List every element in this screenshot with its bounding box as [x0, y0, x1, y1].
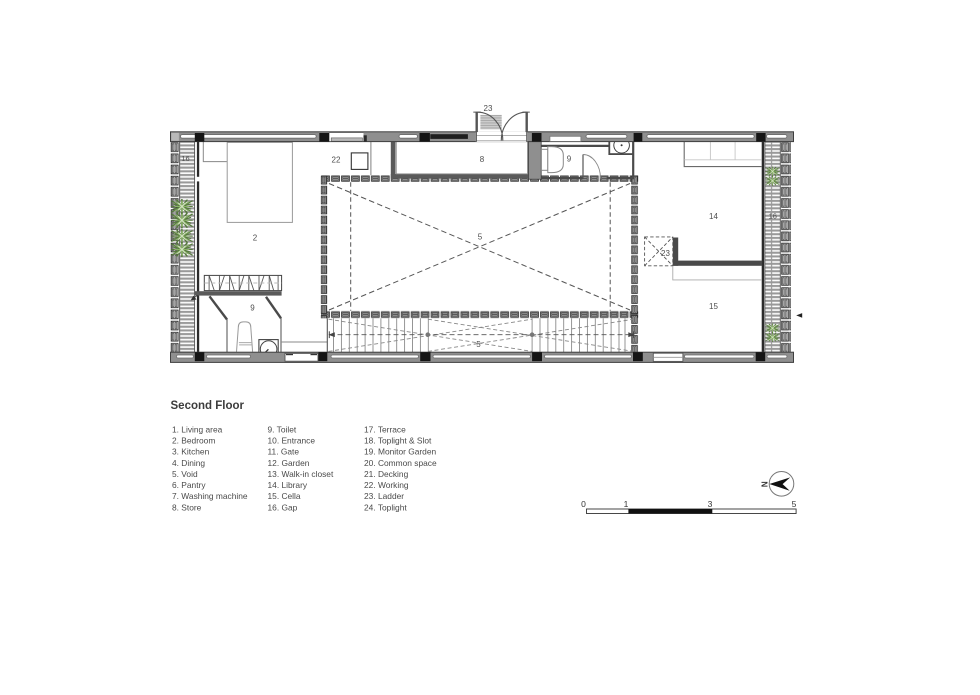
- svg-text:5. Void: 5. Void: [172, 469, 198, 479]
- svg-text:16: 16: [769, 211, 777, 220]
- svg-text:16: 16: [181, 154, 189, 163]
- svg-text:Second Floor: Second Floor: [171, 400, 245, 412]
- svg-text:5: 5: [476, 340, 481, 349]
- svg-text:12. Garden: 12. Garden: [268, 458, 310, 468]
- svg-text:13. Walk-in closet: 13. Walk-in closet: [268, 469, 334, 479]
- svg-text:8: 8: [480, 155, 485, 164]
- svg-text:11. Gate: 11. Gate: [268, 447, 300, 457]
- svg-text:3: 3: [708, 499, 713, 509]
- svg-text:18. Toplight & Slot: 18. Toplight & Slot: [364, 436, 432, 446]
- svg-text:2: 2: [253, 233, 258, 242]
- svg-text:9: 9: [250, 304, 255, 313]
- svg-text:22: 22: [332, 156, 341, 165]
- svg-text:5: 5: [478, 233, 483, 242]
- svg-text:23: 23: [661, 249, 670, 258]
- svg-text:19. Monitor Garden: 19. Monitor Garden: [364, 447, 436, 457]
- svg-text:9: 9: [567, 155, 572, 164]
- svg-text:0: 0: [581, 499, 586, 509]
- svg-text:20. Common space: 20. Common space: [364, 458, 437, 468]
- svg-text:6. Pantry: 6. Pantry: [172, 480, 206, 490]
- svg-text:5: 5: [792, 499, 797, 509]
- svg-text:10. Entrance: 10. Entrance: [268, 436, 316, 446]
- svg-text:15. Cella: 15. Cella: [268, 491, 301, 501]
- svg-text:17. Terrace: 17. Terrace: [364, 424, 406, 434]
- svg-text:14: 14: [709, 212, 718, 221]
- svg-text:7. Washing machine: 7. Washing machine: [172, 491, 248, 501]
- svg-text:14. Library: 14. Library: [268, 480, 308, 490]
- svg-text:24. Toplight: 24. Toplight: [364, 502, 407, 512]
- svg-text:22. Working: 22. Working: [364, 480, 409, 490]
- svg-text:21. Decking: 21. Decking: [364, 469, 409, 479]
- svg-text:16. Gap: 16. Gap: [268, 502, 298, 512]
- svg-text:N: N: [761, 481, 770, 487]
- svg-text:8. Store: 8. Store: [172, 502, 202, 512]
- svg-text:9. Toilet: 9. Toilet: [268, 424, 297, 434]
- svg-text:4. Dining: 4. Dining: [172, 458, 205, 468]
- svg-text:1: 1: [624, 499, 629, 509]
- svg-text:2. Bedroom: 2. Bedroom: [172, 436, 215, 446]
- svg-text:3. Kitchen: 3. Kitchen: [172, 447, 210, 457]
- svg-text:23: 23: [484, 104, 493, 113]
- svg-text:1. Living area: 1. Living area: [172, 424, 223, 434]
- svg-text:23. Ladder: 23. Ladder: [364, 491, 404, 501]
- svg-text:15: 15: [709, 302, 718, 311]
